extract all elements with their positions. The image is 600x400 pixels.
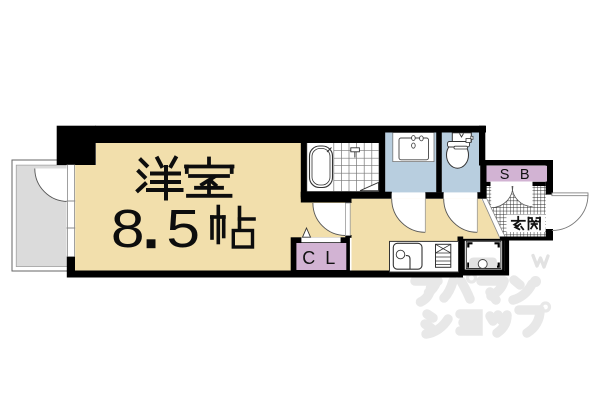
svg-text:5: 5 — [166, 199, 200, 259]
svg-text:SB: SB — [500, 167, 540, 183]
svg-text:CL: CL — [302, 248, 345, 268]
svg-text:8: 8 — [111, 199, 145, 259]
